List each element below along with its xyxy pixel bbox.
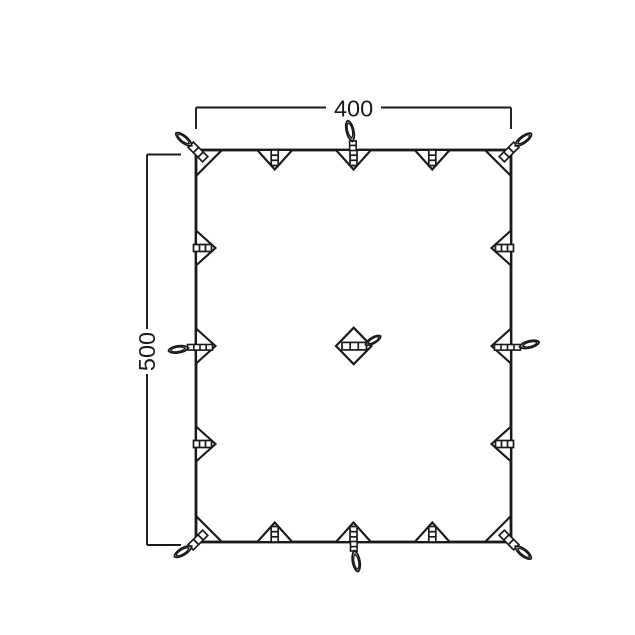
- svg-text:400: 400: [334, 95, 373, 121]
- svg-text:500: 500: [134, 332, 160, 371]
